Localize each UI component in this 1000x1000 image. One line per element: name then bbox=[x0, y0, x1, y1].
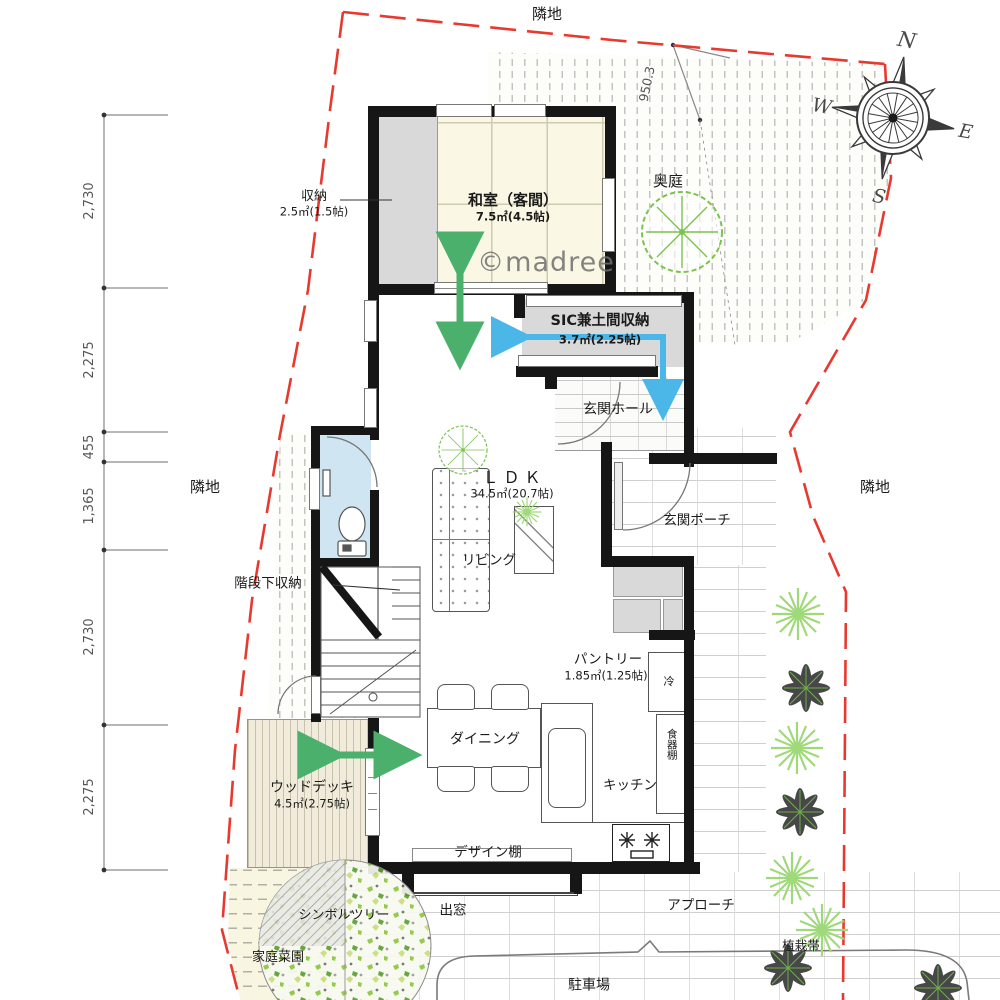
car-outline bbox=[437, 941, 969, 1000]
compass-west-label: W bbox=[810, 94, 835, 119]
property-boundary-line bbox=[222, 12, 891, 1000]
back-garden-tree-icon bbox=[642, 192, 722, 272]
wood-deck-label: ウッドデッキ bbox=[270, 780, 354, 795]
refrigerator-label: 冷 bbox=[664, 676, 675, 688]
staircase bbox=[321, 563, 420, 717]
storage-label: 収納 bbox=[301, 190, 327, 204]
compass-south-label: S bbox=[871, 185, 888, 209]
dimension-label: 2,730 bbox=[83, 182, 97, 219]
stair-exterior-door-arc bbox=[278, 676, 316, 714]
planting-strip-palm-icon bbox=[776, 788, 824, 836]
floor-plan: N E S W 隣地 隣地 隣地 奥庭 950.3 収納 2.5㎡(1.5帖) … bbox=[0, 0, 1000, 1000]
stove-burners bbox=[619, 832, 660, 858]
pantry-area-label: 1.85㎡(1.25帖) bbox=[564, 670, 647, 683]
dimension-label: 2,275 bbox=[83, 341, 97, 378]
symbol-tree-icon bbox=[259, 860, 431, 1000]
compass-north-label: N bbox=[895, 27, 919, 54]
planting-strip-palm-icon bbox=[914, 964, 962, 1000]
kitchen-label: キッチン bbox=[603, 779, 657, 794]
tv-plant-icon bbox=[513, 498, 542, 527]
bay-window-label: 出窓 bbox=[440, 904, 467, 919]
watermark: ©madree bbox=[477, 248, 615, 278]
compass-rose-icon: N E S W bbox=[797, 14, 989, 222]
neighbor-label-top: 隣地 bbox=[532, 6, 562, 23]
planting-strip-label: 植栽帯 bbox=[782, 939, 820, 953]
parking-label: 駐車場 bbox=[568, 978, 610, 993]
dimension-lines-left bbox=[102, 113, 168, 873]
pantry-label: パントリー bbox=[574, 653, 642, 668]
ldk-area-label: 34.5㎡(20.7帖) bbox=[470, 488, 553, 501]
design-shelf-label: デザイン棚 bbox=[454, 846, 522, 861]
compass-east-label: E bbox=[956, 120, 975, 144]
entrance-porch-label: 玄関ポーチ bbox=[663, 514, 731, 529]
approach-label: アプローチ bbox=[667, 899, 735, 914]
washitsu-area-label: 7.5㎡(4.5帖) bbox=[476, 211, 550, 224]
sic-area-label: 3.7㎡(2.25帖) bbox=[559, 334, 641, 347]
cupboard-label: 食器棚 bbox=[665, 728, 677, 760]
storage-area-label: 2.5㎡(1.5帖) bbox=[280, 206, 349, 219]
entrance-hall-label: 玄関ホール bbox=[583, 402, 653, 417]
dining-label: ダイニング bbox=[450, 732, 520, 747]
ldk-plant-icon bbox=[439, 426, 487, 474]
living-label: リビング bbox=[462, 554, 516, 569]
vegetable-garden-label: 家庭菜園 bbox=[252, 951, 304, 965]
symbol-tree-label: シンボルツリー bbox=[298, 909, 389, 923]
neighbor-label-left: 隣地 bbox=[190, 479, 220, 496]
dimension-label: 2,275 bbox=[83, 778, 97, 815]
planting-strip-bush-icon bbox=[766, 852, 818, 904]
washitsu-label: 和室（客間） bbox=[468, 192, 558, 209]
planting-strip-bush-icon bbox=[771, 722, 823, 774]
back-garden-label: 奥庭 bbox=[653, 173, 683, 190]
toilet-door-arc bbox=[327, 437, 377, 487]
dimension-label: 2,730 bbox=[83, 618, 97, 655]
planting-strip-palm-icon bbox=[782, 664, 830, 712]
dimension-label: 1,365 bbox=[83, 487, 97, 524]
wood-deck-area-label: 4.5㎡(2.75帖) bbox=[274, 798, 350, 811]
dimension-label: 455 bbox=[83, 435, 97, 460]
ldk-label: ＬＤＫ bbox=[482, 469, 545, 487]
sic-label: SIC兼土間収納 bbox=[551, 314, 650, 330]
under-stairs-label: 階段下収納 bbox=[234, 577, 302, 592]
toilet-fixture bbox=[323, 470, 366, 556]
planting-strip-bush-icon bbox=[772, 588, 824, 640]
neighbor-label-right: 隣地 bbox=[860, 479, 890, 496]
